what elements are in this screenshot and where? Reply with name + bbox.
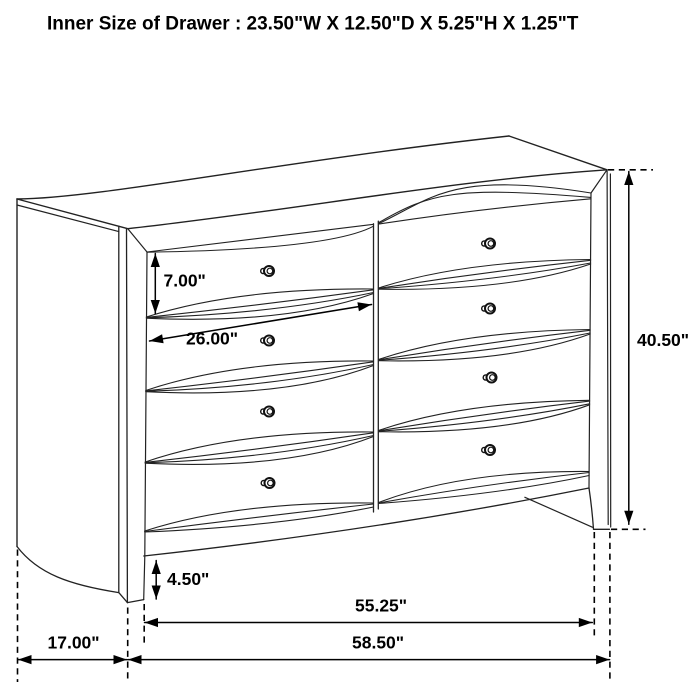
svg-text:7.00": 7.00": [164, 270, 206, 290]
svg-text:4.50": 4.50": [167, 569, 209, 589]
svg-text:58.50": 58.50": [352, 633, 404, 653]
svg-text:Inner Size of Drawer : 23.50"W: Inner Size of Drawer : 23.50"W X 12.50"D…: [47, 14, 579, 35]
svg-text:17.00": 17.00": [48, 633, 100, 653]
svg-text:26.00": 26.00": [186, 328, 238, 348]
svg-text:40.50": 40.50": [637, 330, 689, 350]
svg-text:55.25": 55.25": [355, 596, 407, 616]
